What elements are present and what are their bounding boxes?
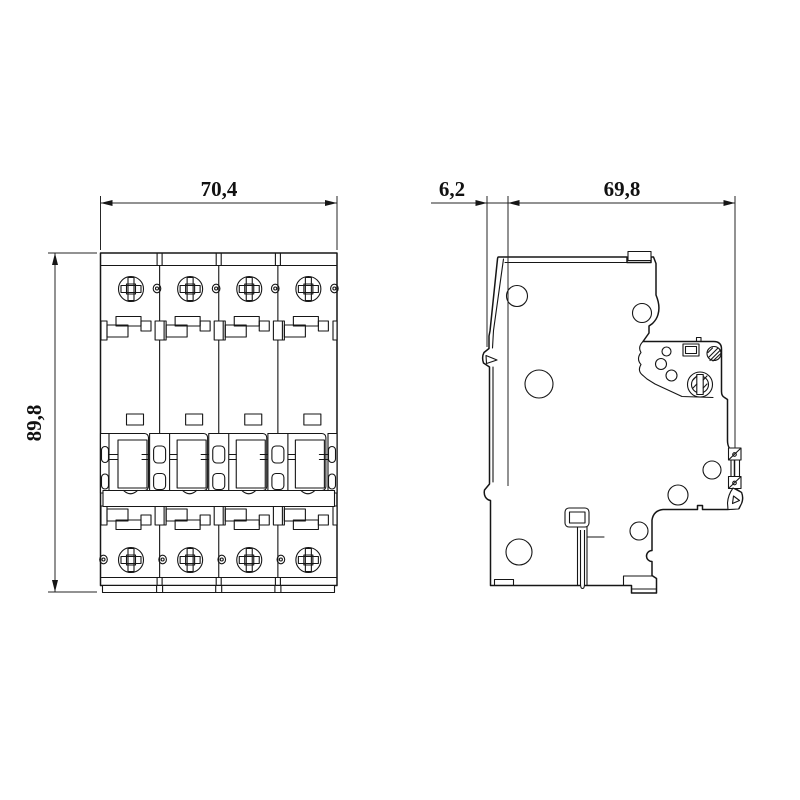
dimension-offset-label: 6,2 xyxy=(439,177,465,201)
dimension-height-label: 89,8 xyxy=(22,405,46,442)
side-profile-outline xyxy=(483,257,743,593)
technical-drawing-page: 70,4 89,8 6,2 69,8 xyxy=(0,0,800,800)
front-view xyxy=(100,253,338,593)
din-clip-pawls xyxy=(728,448,743,510)
top-clip-tab xyxy=(628,252,651,261)
dimension-width-label: 70,4 xyxy=(201,177,238,201)
mcb-dimension-drawing: 70,4 89,8 6,2 69,8 xyxy=(0,0,800,800)
dimension-height: 89,8 xyxy=(22,253,97,592)
tie-bar xyxy=(103,491,335,507)
side-view xyxy=(483,196,743,593)
dimension-width: 70,4 xyxy=(101,177,338,250)
dimension-depth-label: 69,8 xyxy=(604,177,641,201)
bottom-strip xyxy=(103,586,335,593)
terminal-screw-icon xyxy=(688,372,713,397)
